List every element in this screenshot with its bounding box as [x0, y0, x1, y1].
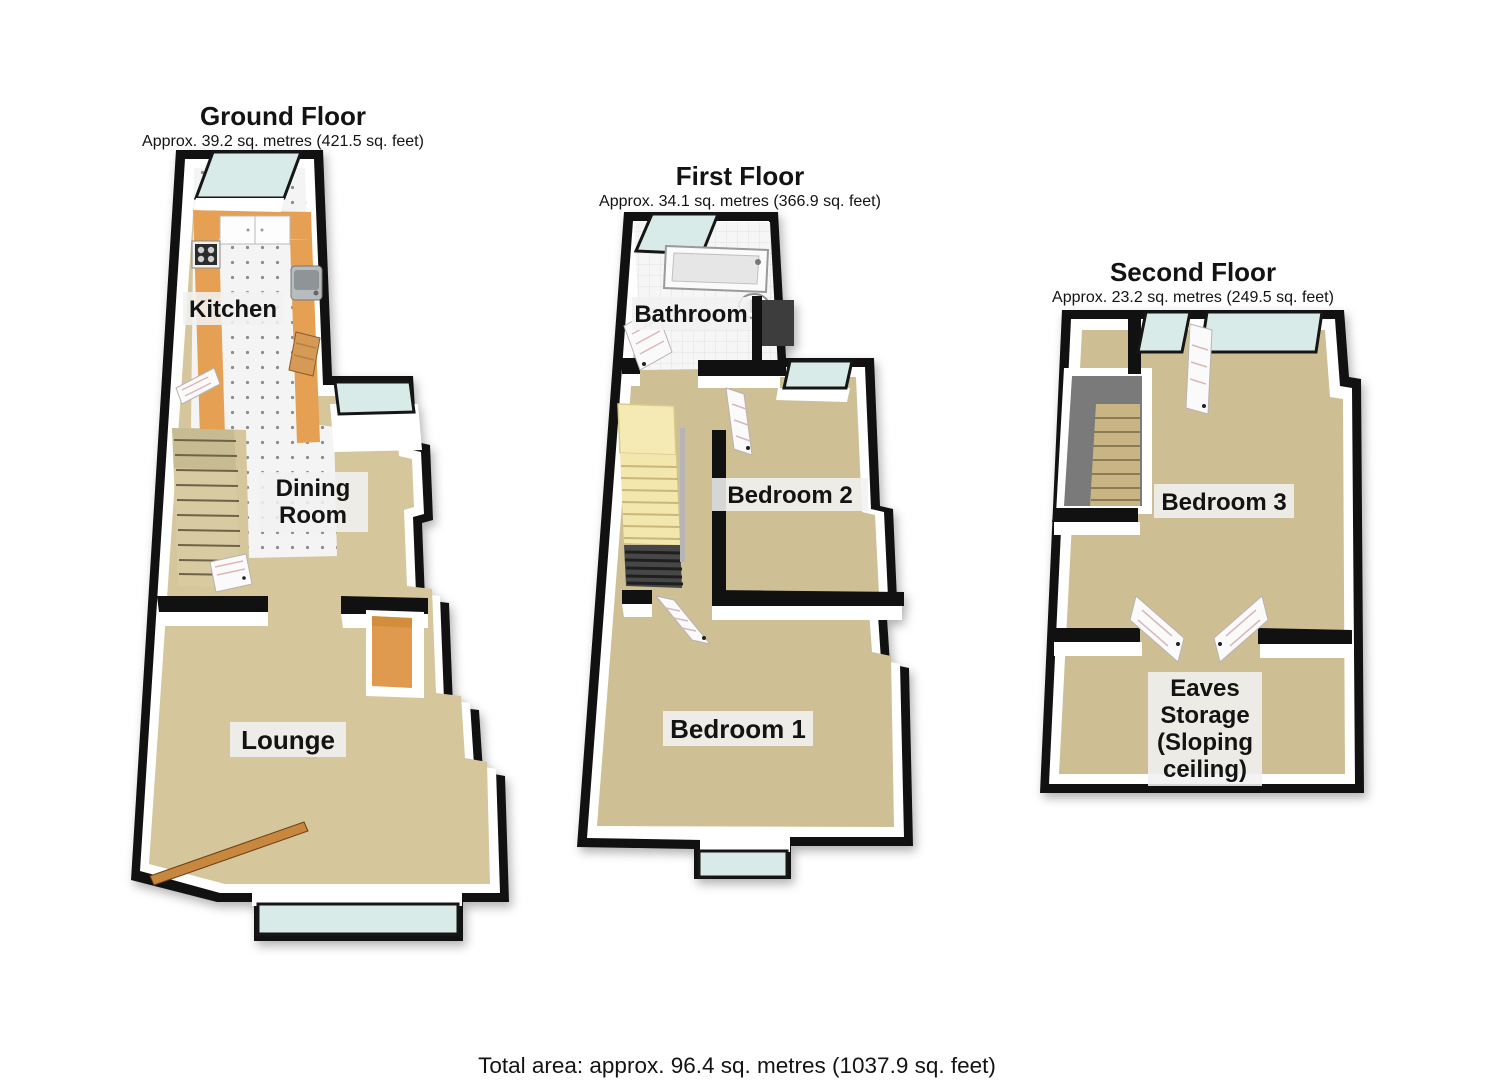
- first-floor-plan: Bathroom Bedroom 2 Bedroom 1: [577, 212, 913, 879]
- bedroom3-label: Bedroom 3: [1154, 484, 1294, 518]
- kitchen-cabinets: [220, 216, 290, 244]
- ground-floor-area: Approx. 39.2 sq. metres (421.5 sq. feet): [142, 133, 424, 150]
- eaves-label-line1: Eaves: [1170, 675, 1239, 702]
- dining-room-label-line2: Room: [279, 502, 347, 529]
- kitchen-window: [196, 152, 301, 198]
- bedroom1-label-text: Bedroom 1: [670, 714, 806, 744]
- lounge-bay-window: [258, 904, 458, 934]
- second-floor-plan: Bedroom 3 Eaves Storage (Sloping ceiling…: [1040, 310, 1364, 793]
- eaves-storage-label: Eaves Storage (Sloping ceiling): [1148, 672, 1262, 786]
- ground-floor-plan: Kitchen Dining Room Lounge: [131, 150, 509, 941]
- floorplan-page: Kitchen Dining Room Lounge: [0, 0, 1485, 1080]
- bedroom3-label-text: Bedroom 3: [1161, 489, 1286, 516]
- first-floor-title: First Floor: [676, 161, 805, 191]
- bedroom2-window: [784, 361, 852, 388]
- lounge-label: Lounge: [230, 722, 346, 757]
- kitchen-sink-icon: [291, 266, 322, 300]
- first-floor-area: Approx. 34.1 sq. metres (366.9 sq. feet): [599, 193, 881, 210]
- kitchen-window-sill: [194, 198, 284, 212]
- bedroom1-window: [699, 851, 787, 877]
- dining-room-label: Dining Room: [258, 472, 368, 532]
- bedroom1-label: Bedroom 1: [663, 711, 813, 746]
- dining-window: [335, 382, 414, 414]
- stair-handrail: [680, 428, 685, 562]
- lounge-label-text: Lounge: [241, 725, 335, 755]
- eaves-label-line3: (Sloping: [1157, 729, 1253, 756]
- bedroom2-label-text: Bedroom 2: [727, 482, 852, 509]
- stairwell-bottom-wall: [1052, 508, 1138, 522]
- kitchen-hob-icon: [192, 241, 220, 268]
- landing-bedroom2-wall: [712, 430, 726, 594]
- second-floor-area: Approx. 23.2 sq. metres (249.5 sq. feet): [1052, 289, 1334, 306]
- bathtub-icon: [664, 246, 768, 292]
- bedroom2-label: Bedroom 2: [712, 478, 868, 511]
- first-floor-heading: First Floor Approx. 34.1 sq. metres (366…: [599, 161, 881, 210]
- eaves-label-line2: Storage: [1160, 702, 1249, 729]
- bathroom-label-text: Bathroom: [634, 301, 747, 328]
- eaves-label-line4: ceiling): [1163, 756, 1247, 783]
- skylight-window-left: [1138, 312, 1190, 352]
- bedroom2-window-sill: [776, 388, 850, 402]
- ground-floor-title: Ground Floor: [200, 101, 366, 131]
- total-area-text: Total area: approx. 96.4 sq. metres (103…: [478, 1053, 996, 1078]
- bedroom3-door: [1186, 324, 1212, 414]
- second-floor-title: Second Floor: [1110, 257, 1276, 287]
- second-floor-heading: Second Floor Approx. 23.2 sq. metres (24…: [1052, 257, 1334, 306]
- skylight-window-right: [1201, 312, 1322, 352]
- kitchen-label: Kitchen: [183, 292, 283, 325]
- fireplace: [366, 610, 424, 698]
- bathroom-label: Bathroom: [632, 297, 750, 330]
- dining-room-label-line1: Dining: [276, 475, 351, 502]
- first-staircase: [618, 404, 685, 588]
- ground-floor-heading: Ground Floor Approx. 39.2 sq. metres (42…: [142, 101, 424, 150]
- kitchen-label-text: Kitchen: [189, 296, 277, 323]
